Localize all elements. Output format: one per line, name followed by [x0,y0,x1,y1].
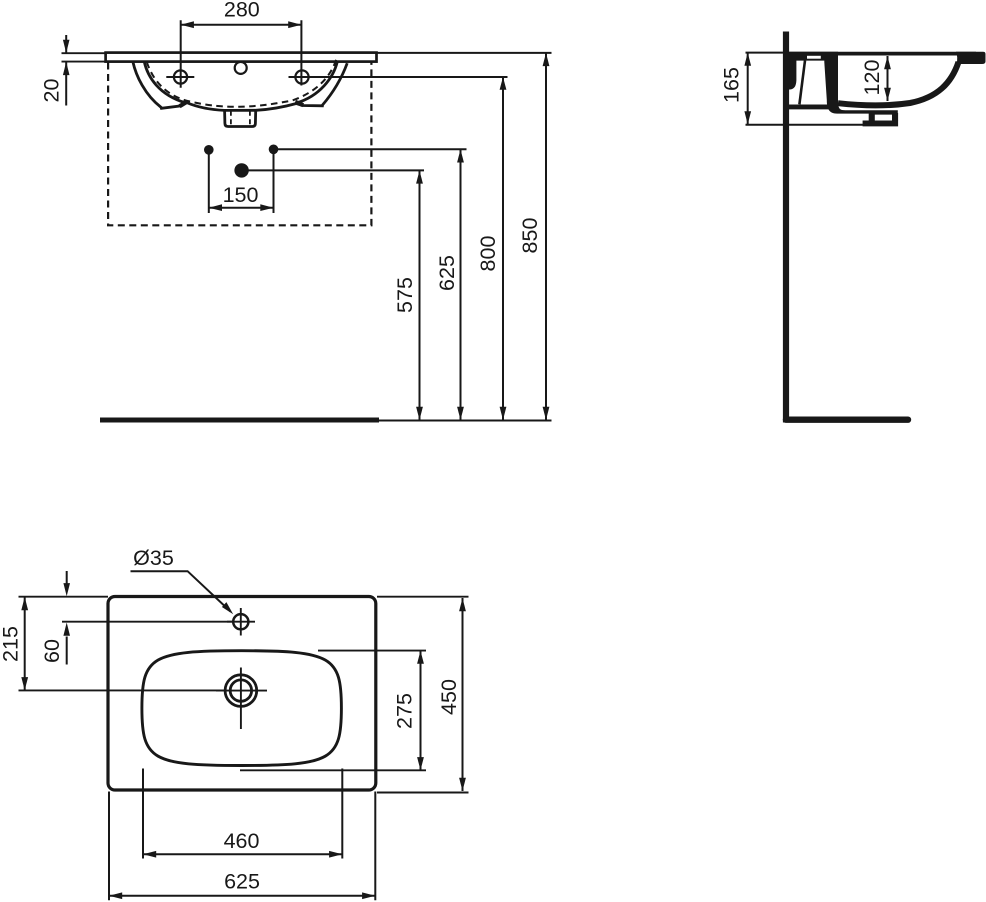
svg-text:625: 625 [435,255,459,291]
svg-text:215: 215 [0,626,23,662]
svg-text:280: 280 [224,0,260,22]
svg-text:120: 120 [860,60,884,96]
svg-text:800: 800 [476,236,500,272]
svg-text:450: 450 [437,679,461,715]
svg-text:60: 60 [40,639,64,663]
svg-text:275: 275 [393,693,417,729]
svg-text:150: 150 [223,183,259,207]
svg-text:165: 165 [720,67,744,103]
svg-text:625: 625 [224,870,260,894]
svg-text:850: 850 [518,218,542,254]
svg-text:Ø35: Ø35 [133,546,174,570]
svg-text:575: 575 [393,277,417,313]
svg-text:20: 20 [40,79,64,103]
svg-text:460: 460 [224,829,260,853]
